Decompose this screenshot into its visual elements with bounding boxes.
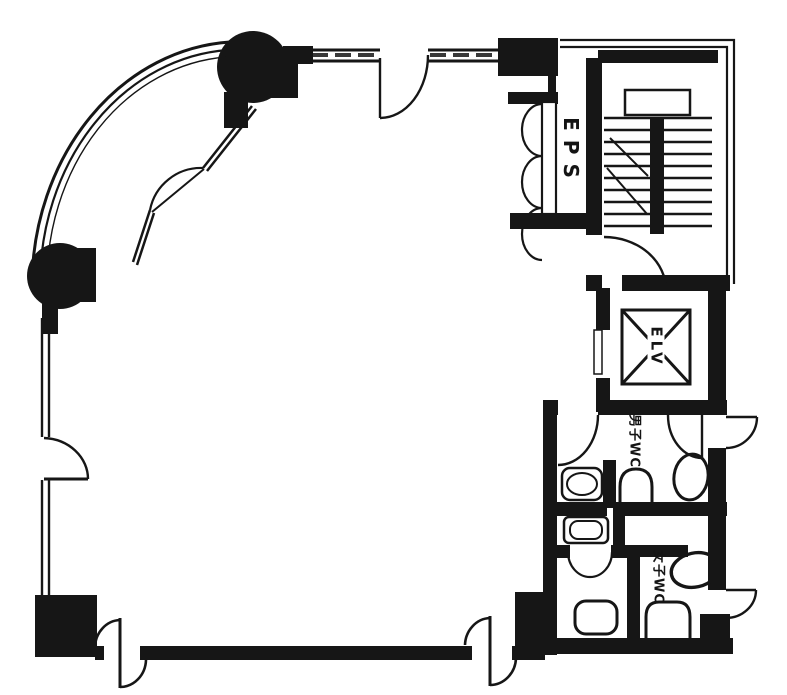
stair-landing <box>625 90 690 115</box>
elevator-label: ELV <box>648 324 665 369</box>
left-door-arc <box>44 438 88 479</box>
stall-door-arc <box>668 415 702 458</box>
top-window-wall <box>310 50 498 118</box>
side-exit-door-arc <box>726 417 757 448</box>
eps-doors <box>522 102 556 260</box>
service-sink <box>575 601 617 634</box>
mens-wc-fixtures <box>558 415 757 506</box>
floorplan-linework <box>0 0 787 695</box>
womens-exit-door-arc <box>726 590 756 618</box>
floor-plan: EPS ELV 男子WC 女子WC <box>0 0 787 695</box>
double-door-left-arc <box>568 552 590 577</box>
womens-stall <box>646 602 690 638</box>
diagonal-wall <box>133 106 256 265</box>
washroom-fixtures <box>564 517 617 634</box>
urinal <box>620 469 652 506</box>
eps-label: EPS <box>561 117 581 187</box>
mens-wc-door-arc <box>558 415 598 465</box>
corner-door-arc <box>150 168 203 210</box>
left-window-wall <box>42 318 88 630</box>
womens-wc-label: 女子WC <box>652 550 665 604</box>
double-door-right-arc <box>590 552 612 577</box>
top-door-arc <box>380 55 428 118</box>
mens-wc-label: 男子WC <box>628 414 641 468</box>
mens-toilet <box>671 452 711 502</box>
